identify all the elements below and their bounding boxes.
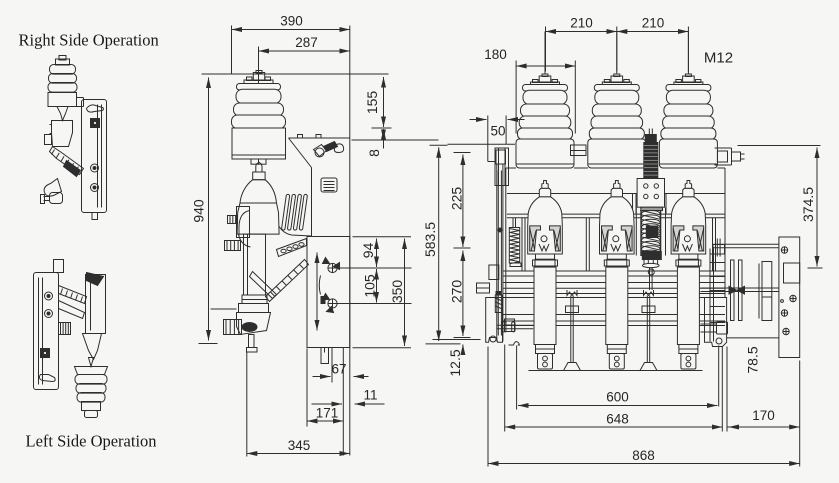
svg-text:940: 940 <box>191 199 207 223</box>
svg-text:287: 287 <box>295 35 318 50</box>
svg-text:583.5: 583.5 <box>422 222 438 257</box>
svg-text:170: 170 <box>752 408 775 423</box>
svg-text:180: 180 <box>484 47 507 62</box>
svg-text:155: 155 <box>364 91 380 115</box>
svg-text:345: 345 <box>288 438 311 453</box>
svg-text:210: 210 <box>642 16 665 31</box>
svg-text:374.5: 374.5 <box>800 187 816 222</box>
svg-text:Left Side Operation: Left Side Operation <box>26 432 157 451</box>
svg-text:94: 94 <box>360 243 376 259</box>
svg-text:78.5: 78.5 <box>745 346 761 373</box>
svg-text:M12: M12 <box>704 50 733 67</box>
svg-text:Right Side Operation: Right Side Operation <box>19 30 159 49</box>
svg-text:350: 350 <box>389 280 405 304</box>
svg-text:50: 50 <box>490 124 505 139</box>
svg-text:210: 210 <box>570 16 593 31</box>
svg-text:8: 8 <box>366 149 382 157</box>
svg-text:67: 67 <box>331 362 346 377</box>
svg-text:270: 270 <box>449 280 465 304</box>
svg-text:600: 600 <box>606 390 629 405</box>
svg-text:11: 11 <box>363 388 377 403</box>
svg-text:390: 390 <box>280 14 303 29</box>
svg-text:225: 225 <box>449 187 465 211</box>
svg-text:105: 105 <box>362 274 378 298</box>
svg-text:648: 648 <box>606 412 629 427</box>
svg-text:868: 868 <box>632 448 655 463</box>
svg-text:12.5: 12.5 <box>447 349 463 376</box>
svg-text:171: 171 <box>316 406 339 421</box>
